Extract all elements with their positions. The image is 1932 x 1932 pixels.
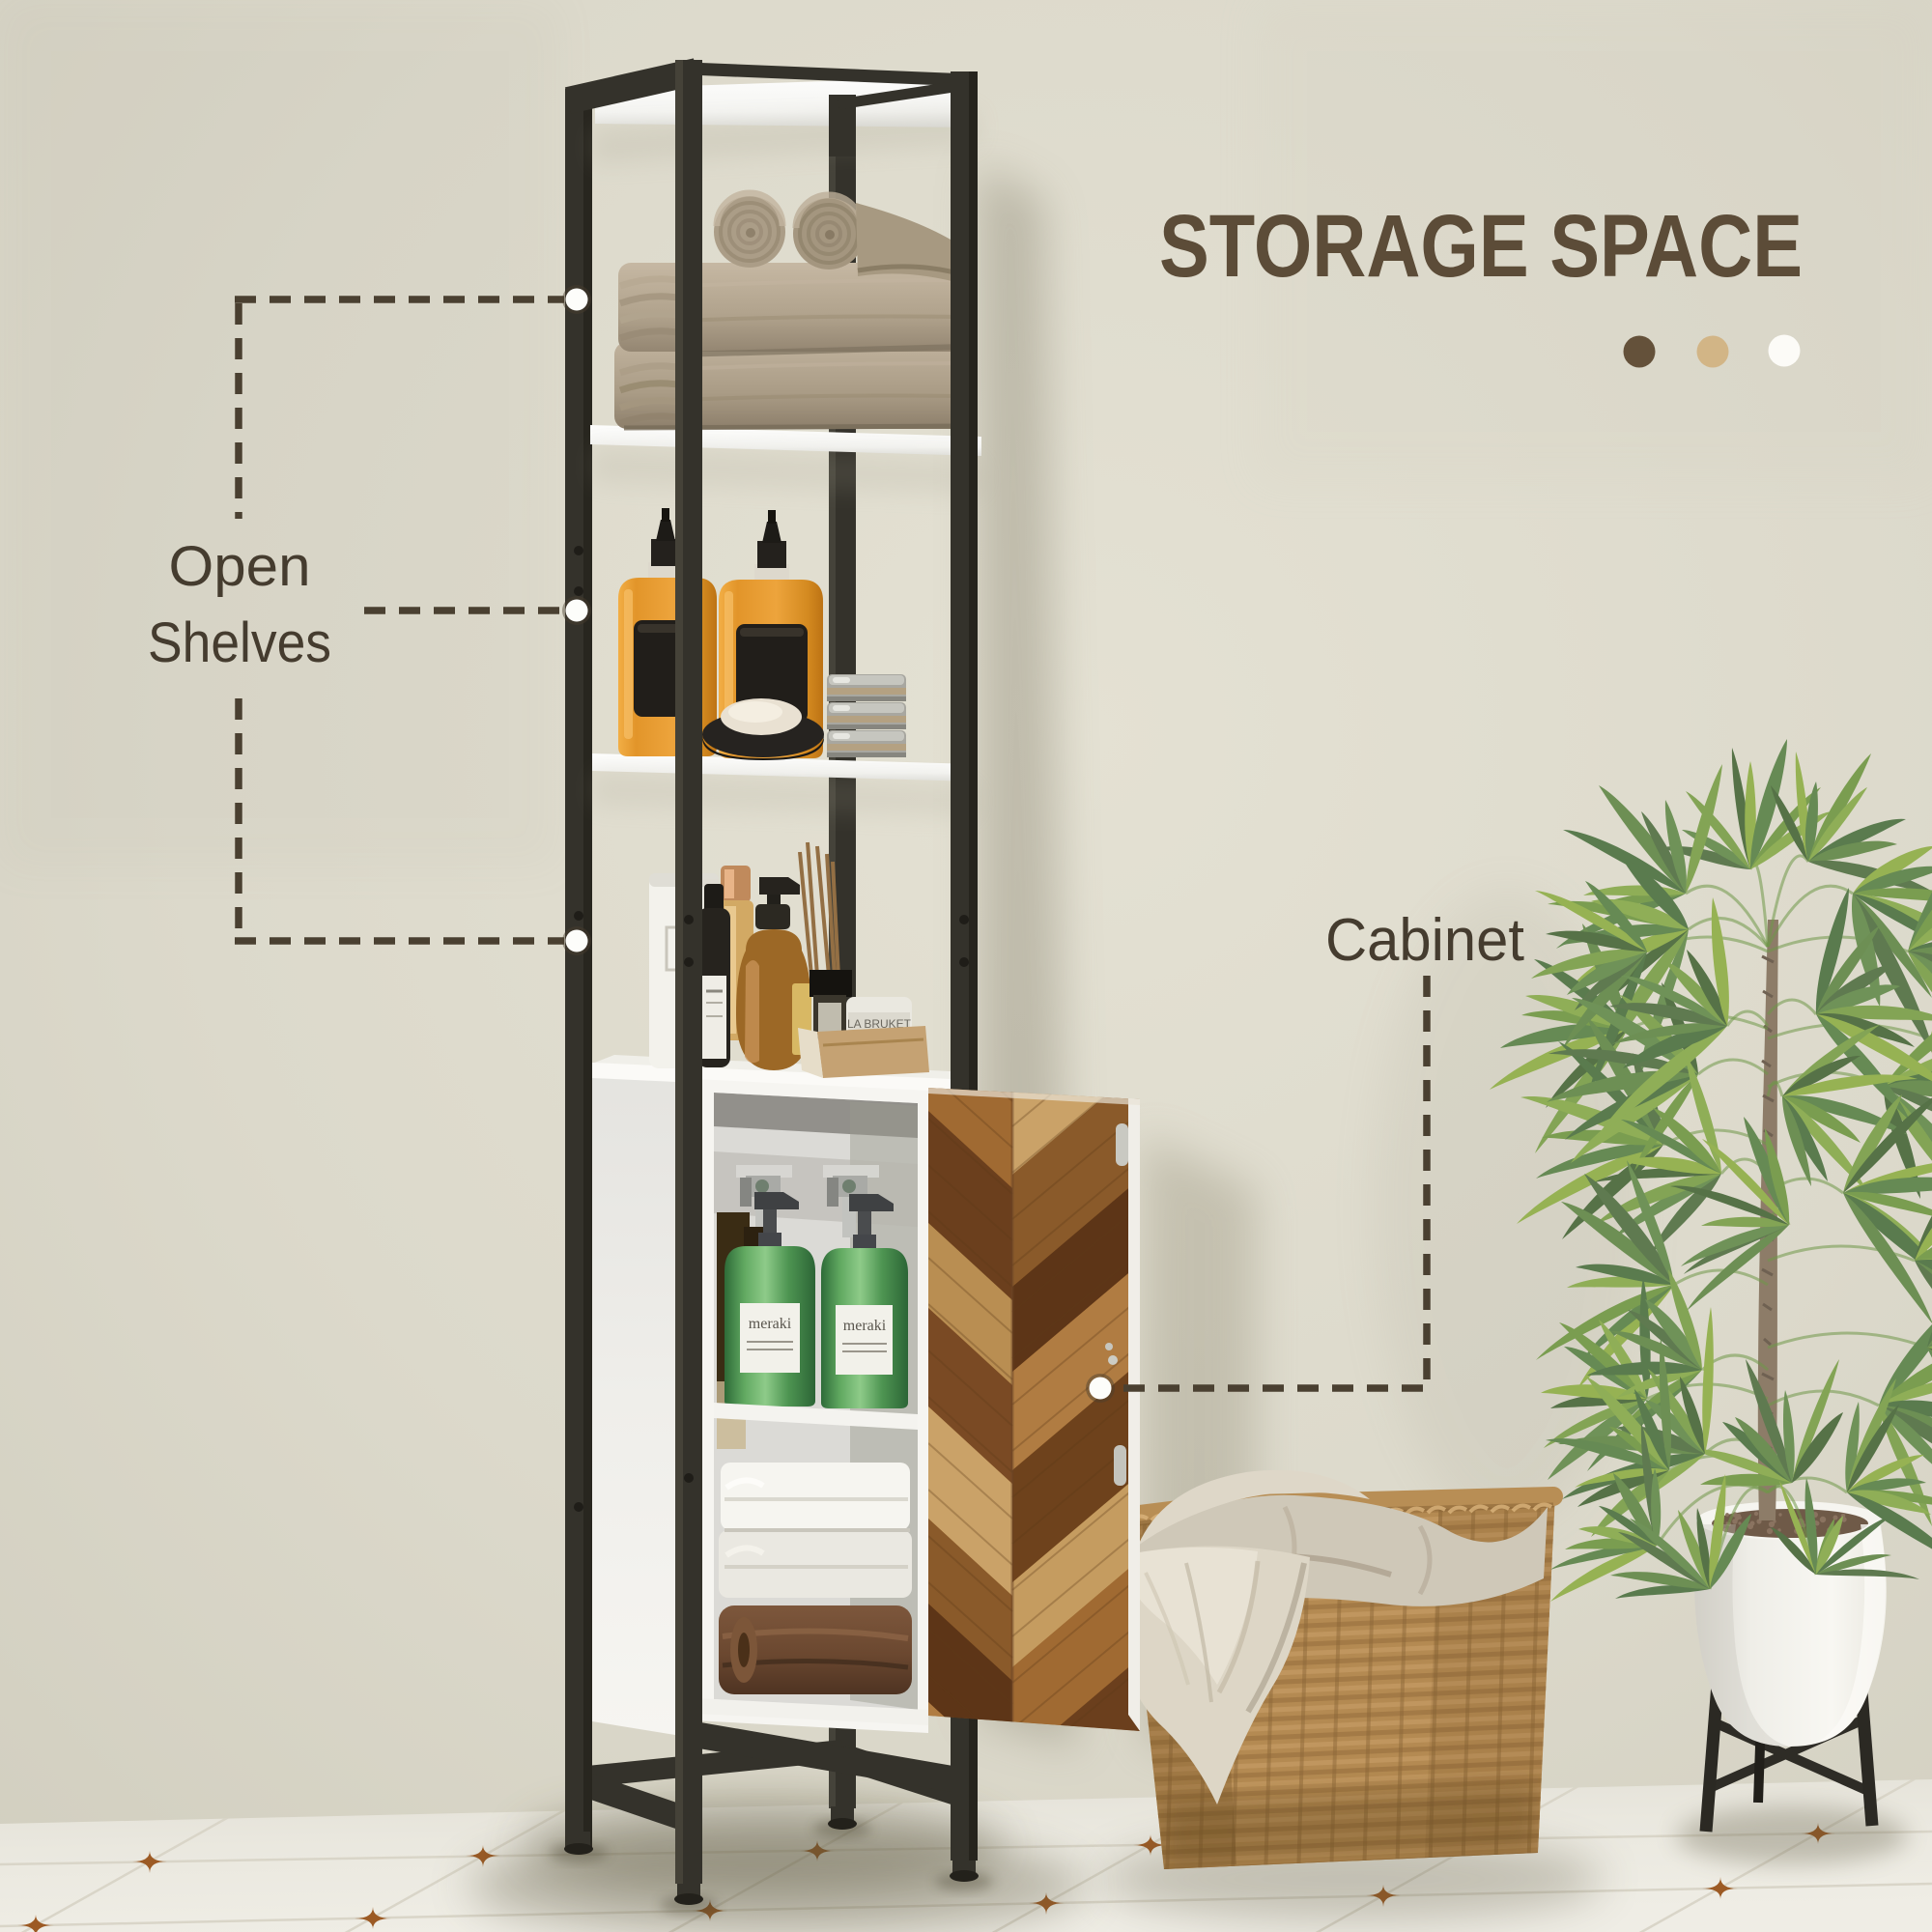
svg-text:meraki: meraki — [749, 1316, 792, 1332]
svg-text:meraki: meraki — [843, 1318, 887, 1334]
svg-text:Shelves: Shelves — [148, 611, 331, 674]
svg-text:Cabinet: Cabinet — [1325, 907, 1524, 974]
svg-text:STORAGE SPACE: STORAGE SPACE — [1159, 197, 1803, 296]
svg-text:Open: Open — [169, 535, 311, 598]
